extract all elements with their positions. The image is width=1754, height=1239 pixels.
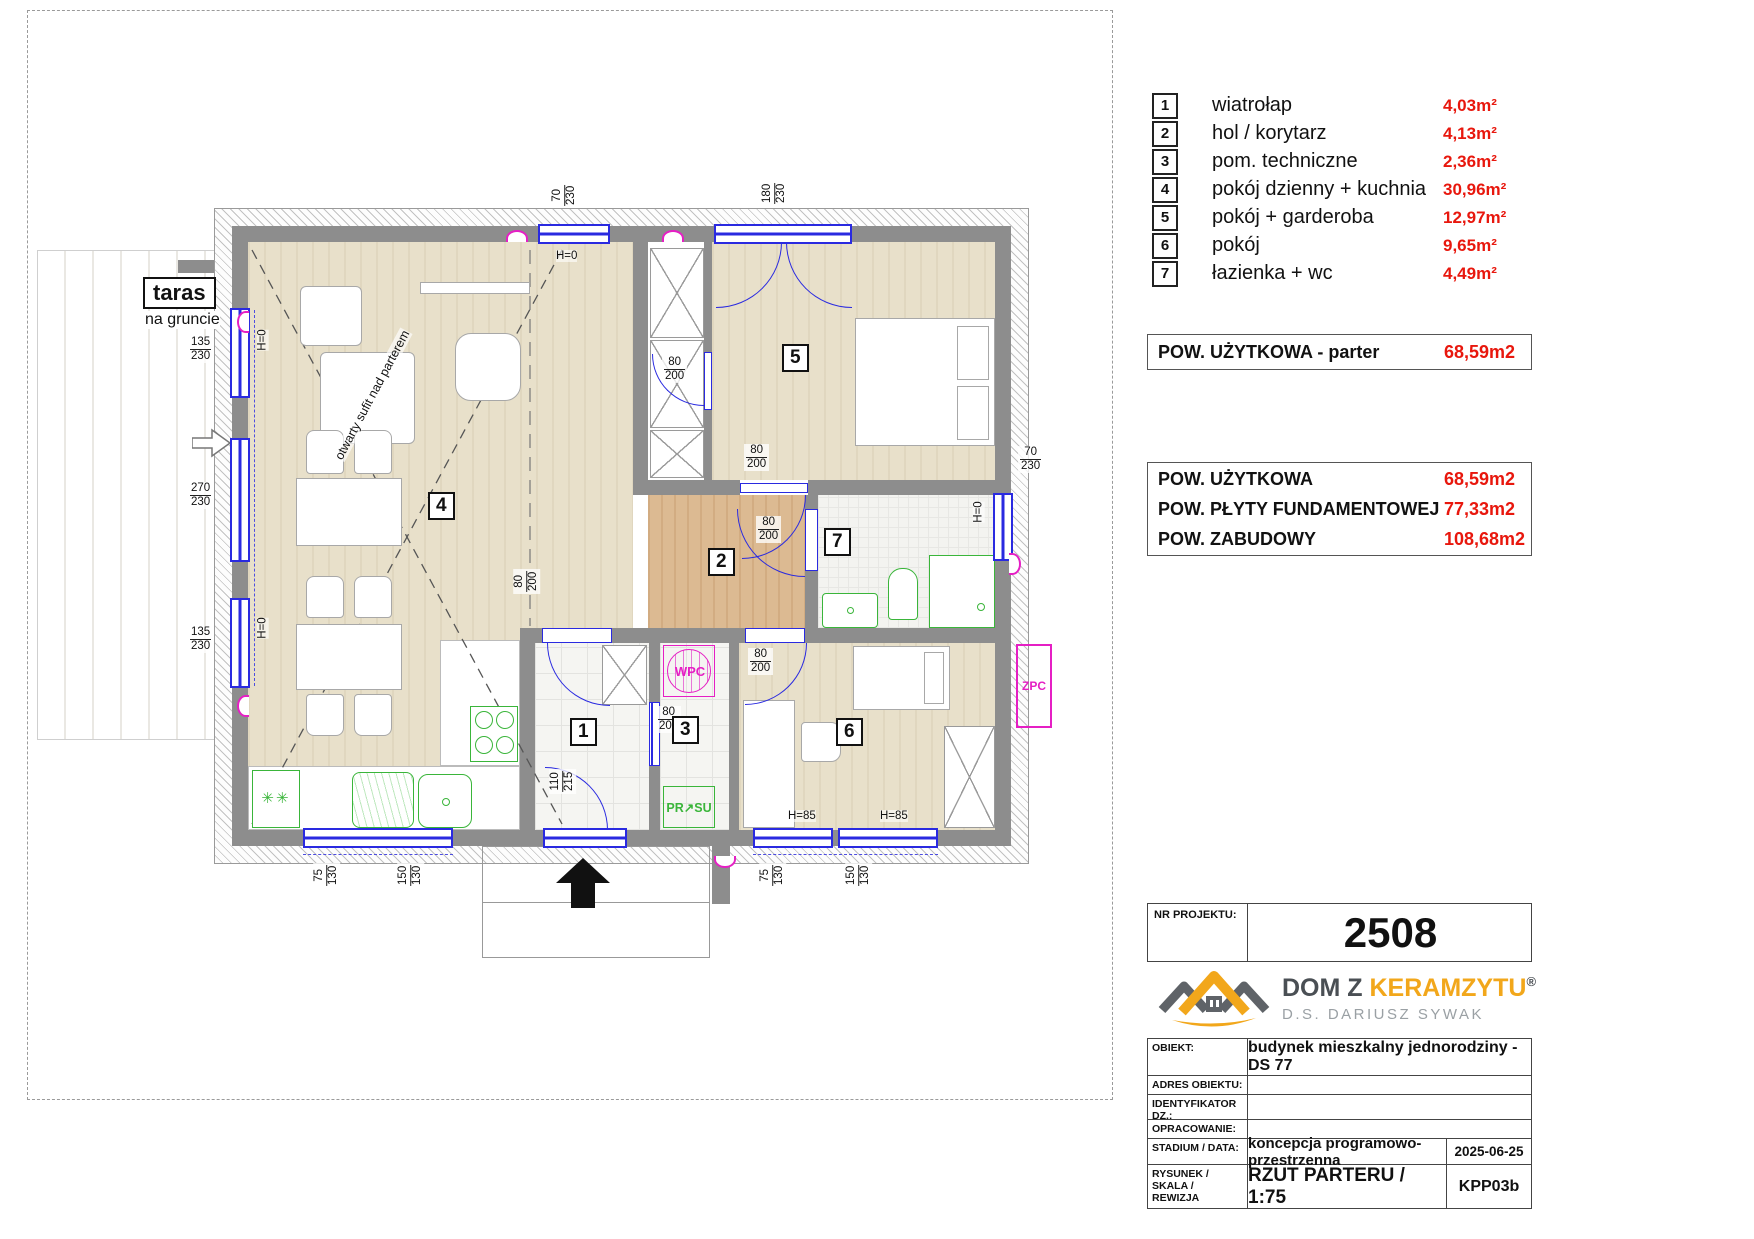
room-label-2: 2 xyxy=(708,548,735,576)
legend-name-3: pom. techniczne xyxy=(1212,150,1358,173)
window xyxy=(838,828,938,848)
legend-name-6: pokój xyxy=(1212,234,1260,257)
legend-num-3: 3 xyxy=(1152,149,1178,175)
dining-table xyxy=(296,624,402,690)
room-label-6: 6 xyxy=(836,718,863,746)
dim-window: 70230 xyxy=(1018,446,1043,473)
burner xyxy=(475,711,493,729)
window-dashed-line xyxy=(303,854,453,855)
window xyxy=(230,438,250,562)
wpc-label: WPC xyxy=(664,664,716,679)
logo-house-icon xyxy=(1158,966,1270,1032)
row-opracowanie-label: OPRACOWANIE: xyxy=(1148,1120,1248,1138)
row-identyfikator-value xyxy=(1248,1095,1531,1119)
legend-num-7: 7 xyxy=(1152,261,1178,287)
wall xyxy=(808,480,995,495)
dish-drainer xyxy=(352,772,414,828)
summary-parter-box: POW. UŻYTKOWA - parter 68,59m2 xyxy=(1147,334,1532,370)
wall xyxy=(649,643,660,702)
legend-area-2: 4,13m² xyxy=(1443,124,1497,144)
row-stadium-label: STADIUM / DATA: xyxy=(1148,1139,1248,1164)
vent-icon xyxy=(237,311,249,333)
door-threshold xyxy=(745,628,805,643)
row-rysunek-rev: KPP03b xyxy=(1446,1165,1531,1209)
row-obiekt-label: OBIEKT: xyxy=(1148,1039,1248,1075)
wall xyxy=(704,410,712,480)
legend-name-1: wiatrołap xyxy=(1212,94,1292,117)
room-label-1: 1 xyxy=(570,718,597,746)
wall xyxy=(805,571,818,628)
room-label-7: 7 xyxy=(824,528,851,556)
row-rysunek-label: RYSUNEK / SKALA / REWIZJA xyxy=(1148,1165,1248,1209)
legend-name-5: pokój + garderoba xyxy=(1212,206,1374,229)
direction-arrow-icon xyxy=(192,428,232,458)
project-number-label: NR PROJEKTU: xyxy=(1148,904,1248,961)
wardrobe-cabinet xyxy=(650,248,704,338)
door-threshold xyxy=(542,628,612,643)
door-threshold xyxy=(805,509,818,571)
dim-window: 70230 xyxy=(551,183,578,208)
dim-door: 80200 xyxy=(748,648,773,675)
sink-drain xyxy=(847,607,854,614)
entry-door xyxy=(543,828,627,848)
window xyxy=(993,493,1013,561)
sill-height-label: H=0 xyxy=(556,250,577,262)
wall xyxy=(805,495,818,509)
chair xyxy=(354,576,392,618)
summary-parter-label: POW. UŻYTKOWA - parter xyxy=(1158,342,1379,363)
wall xyxy=(649,766,660,830)
window xyxy=(230,598,250,688)
row-adres-label: ADRES OBIEKTU: xyxy=(1148,1076,1248,1094)
row-stadium-value: koncepcja programowo-przestrzenna xyxy=(1248,1139,1446,1164)
wall-stub-porch xyxy=(712,846,730,904)
burner xyxy=(496,736,514,754)
room-label-5: 5 xyxy=(782,344,809,372)
row-adres-value xyxy=(1248,1076,1531,1094)
brand-name-accent: KERAMZYTU xyxy=(1370,974,1527,1002)
window-dashed-line xyxy=(254,310,255,686)
chair xyxy=(354,694,392,736)
wall xyxy=(805,628,995,643)
dim-entry-door: 110215 xyxy=(549,769,576,794)
row-identyfikator-label: IDENTYFIKATOR DZ.: xyxy=(1148,1095,1248,1119)
room-label-3: 3 xyxy=(672,716,699,744)
door-leaf xyxy=(651,703,653,765)
vent-icon xyxy=(662,230,684,242)
window xyxy=(538,224,610,244)
title-block-table: OBIEKT: budynek mieszkalny jednorodziny … xyxy=(1147,1038,1532,1209)
dim-window: 75130 xyxy=(759,863,786,888)
registered-icon: ® xyxy=(1526,974,1536,989)
legend-area-1: 4,03m² xyxy=(1443,96,1497,116)
terrace-sublabel: na gruncie xyxy=(145,311,220,329)
wardrobe-cabinet xyxy=(650,430,704,478)
pillow xyxy=(957,326,989,380)
dim-door: 80200 xyxy=(662,356,687,383)
sink-drain xyxy=(442,798,450,806)
brand-subname: D.S. DARIUSZ SYWAK xyxy=(1282,1006,1484,1023)
burner xyxy=(475,736,493,754)
zpc-symbol: ZPC xyxy=(1016,644,1052,728)
brand-name-dark: DOM Z xyxy=(1282,974,1370,1002)
pillow xyxy=(957,386,989,440)
balcony-door-window xyxy=(714,224,852,244)
window-dashed-line xyxy=(753,854,938,855)
sill-height-label: H=0 xyxy=(973,501,985,522)
dim-window: 150130 xyxy=(397,863,424,888)
wpc-symbol: WPC xyxy=(663,645,715,697)
legend-area-7: 4,49m² xyxy=(1443,264,1497,284)
chair xyxy=(306,694,344,736)
row-stadium: STADIUM / DATA: koncepcja programowo-prz… xyxy=(1148,1139,1531,1165)
floor-plan-sheet: taras na gruncie otwarty sufit nad parte… xyxy=(0,0,1754,1239)
dim-window: 75130 xyxy=(313,863,340,888)
row-rysunek: RYSUNEK / SKALA / REWIZJA RZUT PARTERU /… xyxy=(1148,1165,1531,1209)
legend-name-2: hol / korytarz xyxy=(1212,122,1326,145)
sill-height-label: H=0 xyxy=(257,329,269,350)
vent-icon xyxy=(237,695,249,717)
wall xyxy=(729,643,739,830)
tv-board xyxy=(420,282,530,294)
summary-row-label: POW. ZABUDOWY xyxy=(1158,529,1316,550)
dim-window: 270230 xyxy=(188,482,213,509)
dim-door: 80200 xyxy=(744,444,769,471)
summary-parter-value: 68,59m2 xyxy=(1444,342,1515,363)
dining-table xyxy=(296,478,402,546)
legend-num-6: 6 xyxy=(1152,233,1178,259)
legend-num-1: 1 xyxy=(1152,93,1178,119)
row-adres: ADRES OBIEKTU: xyxy=(1148,1076,1531,1095)
chair xyxy=(801,722,841,762)
armchair xyxy=(300,286,362,346)
window xyxy=(753,828,833,848)
summary-row-value: 77,33m2 xyxy=(1444,499,1515,520)
brand-name: DOM Z KERAMZYTU® xyxy=(1282,974,1536,1003)
project-number-value: 2508 xyxy=(1248,904,1533,961)
sill-height-label: H=85 xyxy=(788,810,816,822)
sill-height-label: H=0 xyxy=(257,617,269,638)
project-number-box: NR PROJEKTU: 2508 xyxy=(1147,903,1532,962)
shower-drain xyxy=(977,603,985,611)
vent-icon xyxy=(506,230,528,242)
legend-name-7: łazienka + wc xyxy=(1212,262,1333,285)
fridge: ✳✳ xyxy=(252,770,300,828)
toilet xyxy=(888,568,918,620)
desk xyxy=(743,700,795,828)
dim-window: 150130 xyxy=(845,863,872,888)
row-rysunek-value: RZUT PARTERU / 1:75 xyxy=(1248,1165,1446,1209)
entrance-arrow-icon xyxy=(552,858,614,910)
summary-row-value: 108,68m2 xyxy=(1444,529,1525,550)
chair xyxy=(306,576,344,618)
row-stadium-date: 2025-06-25 xyxy=(1446,1139,1531,1164)
dim-window: 135230 xyxy=(188,626,213,653)
dim-window: 180230 xyxy=(761,181,788,206)
legend-area-4: 30,96m² xyxy=(1443,180,1506,200)
legend-name-4: pokój dzienny + kuchnia xyxy=(1212,178,1426,201)
legend-num-2: 2 xyxy=(1152,121,1178,147)
row-obiekt-value: budynek mieszkalny jednorodziny - DS 77 xyxy=(1248,1039,1531,1075)
dim-door: 80200 xyxy=(756,516,781,543)
burner xyxy=(496,711,514,729)
row-identyfikator: IDENTYFIKATOR DZ.: xyxy=(1148,1095,1531,1120)
summary-areas-box: POW. UŻYTKOWA 68,59m2 POW. PŁYTY FUNDAME… xyxy=(1147,462,1532,556)
legend-area-5: 12,97m² xyxy=(1443,208,1506,228)
legend-area-6: 9,65m² xyxy=(1443,236,1497,256)
door-threshold xyxy=(740,483,808,493)
coffee-table xyxy=(455,333,521,401)
dim-window: 135230 xyxy=(188,336,213,363)
terrace-label-box: taras xyxy=(143,277,216,309)
legend-area-3: 2,36m² xyxy=(1443,152,1497,172)
dim-door: 80200 xyxy=(513,569,540,594)
legend-num-4: 4 xyxy=(1152,177,1178,203)
pillow xyxy=(924,652,944,704)
legend-num-5: 5 xyxy=(1152,205,1178,231)
door-threshold xyxy=(704,352,712,410)
window xyxy=(303,828,453,848)
summary-row-label: POW. PŁYTY FUNDAMENTOWEJ xyxy=(1158,499,1439,520)
wall xyxy=(704,242,712,352)
shower xyxy=(929,555,995,628)
chair xyxy=(354,430,392,474)
wall xyxy=(633,242,648,495)
sill-height-label: H=85 xyxy=(880,810,908,822)
row-obiekt: OBIEKT: budynek mieszkalny jednorodziny … xyxy=(1148,1039,1531,1076)
summary-row-label: POW. UŻYTKOWA xyxy=(1158,469,1313,490)
summary-row-value: 68,59m2 xyxy=(1444,469,1515,490)
wardrobe-cabinet xyxy=(944,726,995,828)
washer-dryer-symbol: PR↗SU xyxy=(663,786,715,828)
wall xyxy=(633,480,740,495)
room-label-4: 4 xyxy=(428,492,455,520)
